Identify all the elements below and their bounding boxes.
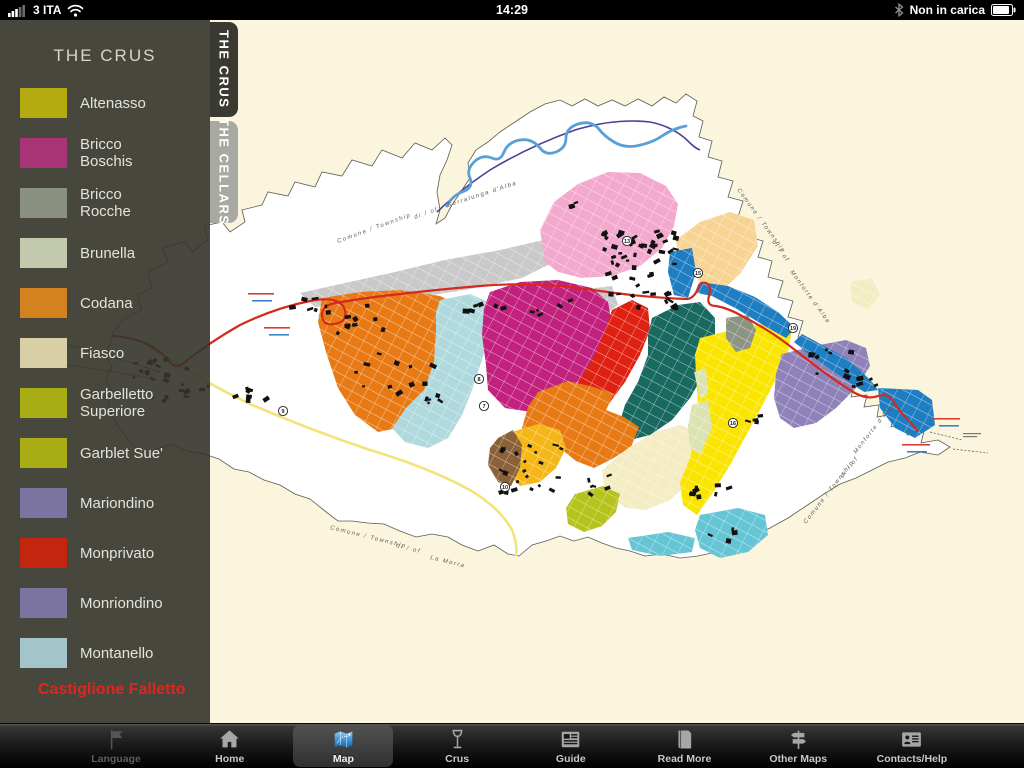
road-note-mark: [264, 327, 290, 329]
side-tab-the-cellars-label: THE CELLARS: [217, 118, 232, 226]
legend-item-monriondino[interactable]: Monriondino: [0, 578, 210, 628]
legend-item-label: Monriondino: [80, 595, 176, 612]
app-screen: 3 ITA 14:29 Non in carica: [0, 0, 1024, 768]
legend-item-label: Bricco Boschis: [80, 136, 176, 170]
legend-item-label: Montanello: [80, 645, 176, 662]
color-swatch: [20, 288, 67, 318]
legend-item-label: Codana: [80, 295, 176, 312]
legend-item-label: Fiasco: [80, 345, 176, 362]
road-note-mark: [252, 300, 272, 302]
toolbar-item-crus[interactable]: Crus: [407, 725, 507, 767]
toolbar-item-label: Read More: [658, 753, 712, 765]
legend-item-bricco-boschis[interactable]: Bricco Boschis: [0, 128, 210, 178]
toolbar-item-read-more[interactable]: Read More: [635, 725, 735, 767]
legend-item-altenasso[interactable]: Altenasso: [0, 78, 210, 128]
toolbar-item-label: Guide: [556, 753, 586, 765]
wine-glass-icon: [445, 726, 470, 752]
legend-item-label: Brunella: [80, 245, 176, 262]
color-swatch: [20, 438, 67, 468]
poi-marker-number: 15: [695, 271, 701, 277]
toolbar-item-map[interactable]: Map: [293, 725, 393, 767]
color-swatch: [20, 138, 67, 168]
legend-item-bricco-rocche[interactable]: Bricco Rocche: [0, 178, 210, 228]
road-note-mark: [248, 293, 274, 295]
legend-item-codana[interactable]: Codana: [0, 278, 210, 328]
clock: 14:29: [0, 3, 1024, 17]
toolbar-item-contacts-help[interactable]: Contacts/Help: [862, 725, 962, 767]
signpost-icon: [786, 726, 811, 752]
road-note-mark: [269, 334, 289, 336]
color-swatch: [20, 488, 67, 518]
poi-marker-number: 16: [730, 421, 736, 427]
side-tab-the-cellars[interactable]: THE CELLARS: [210, 121, 238, 223]
toolbar-item-language[interactable]: Language: [66, 725, 166, 767]
toolbar-item-other-maps[interactable]: Other Maps: [748, 725, 848, 767]
newspaper-icon: [558, 726, 583, 752]
road-note-mark: [907, 451, 927, 453]
toolbar-item-label: Language: [91, 753, 141, 765]
legend-item-montanello[interactable]: Montanello: [0, 628, 210, 678]
legend-item-fiasco[interactable]: Fiasco: [0, 328, 210, 378]
poi-marker-number: 19: [790, 326, 796, 332]
legend-item-monprivato[interactable]: Monprivato: [0, 528, 210, 578]
toolbar-item-label: Contacts/Help: [877, 753, 948, 765]
toolbar-item-label: Crus: [445, 753, 469, 765]
toolbar-item-label: Other Maps: [769, 753, 827, 765]
bottom-toolbar: LanguageHomeMapCrusGuideRead MoreOther M…: [0, 723, 1024, 768]
side-tab-the-crus[interactable]: THE CRUS: [210, 22, 238, 117]
toolbar-item-label: Map: [333, 753, 354, 765]
color-swatch: [20, 588, 67, 618]
legend-item-label: Monprivato: [80, 545, 176, 562]
status-bar: 3 ITA 14:29 Non in carica: [0, 0, 1024, 20]
road-note-mark: [934, 418, 960, 420]
color-swatch: [20, 338, 67, 368]
color-swatch: [20, 538, 67, 568]
commune-name-label: Castiglione Falletto: [38, 681, 186, 699]
legend-item-label: Bricco Rocche: [80, 186, 176, 220]
flag-icon: [104, 726, 129, 752]
legend-item-mariondino[interactable]: Mariondino: [0, 478, 210, 528]
legend-item-garbelletto-superiore[interactable]: Garbelletto Superiore: [0, 378, 210, 428]
legend-item-label: Garblet Sue': [80, 445, 176, 462]
color-swatch: [20, 188, 67, 218]
color-swatch: [20, 88, 67, 118]
legend-item-label: Altenasso: [80, 95, 176, 112]
legend-item-garblet-sue[interactable]: Garblet Sue': [0, 428, 210, 478]
contact-card-icon: [899, 726, 924, 752]
toolbar-item-label: Home: [215, 753, 244, 765]
color-swatch: [20, 638, 67, 668]
road-note-mark: [939, 425, 959, 427]
map-icon: [331, 726, 356, 752]
legend-item-brunella[interactable]: Brunella: [0, 228, 210, 278]
poi-marker-number: 10: [502, 485, 508, 491]
panel-title: THE CRUS: [0, 46, 210, 66]
poi-marker-number: 13: [624, 239, 630, 245]
toolbar-item-guide[interactable]: Guide: [521, 725, 621, 767]
legend-item-label: Garbelletto Superiore: [80, 386, 176, 420]
road-note-mark: [902, 444, 930, 446]
home-icon: [217, 726, 242, 752]
poi-marker-number: 9: [281, 409, 284, 415]
toolbar-item-home[interactable]: Home: [180, 725, 280, 767]
legend-item-label: Mariondino: [80, 495, 176, 512]
book-icon: [672, 726, 697, 752]
crus-legend-panel: THE CRUS AltenassoBricco BoschisBricco R…: [0, 20, 210, 723]
color-swatch: [20, 388, 67, 418]
color-swatch: [20, 238, 67, 268]
side-tab-the-crus-label: THE CRUS: [217, 30, 232, 108]
poi-marker-number: 7: [482, 404, 485, 410]
crus-legend-list: AltenassoBricco BoschisBricco RoccheBrun…: [0, 78, 210, 678]
poi-marker-number: 8: [477, 377, 480, 383]
